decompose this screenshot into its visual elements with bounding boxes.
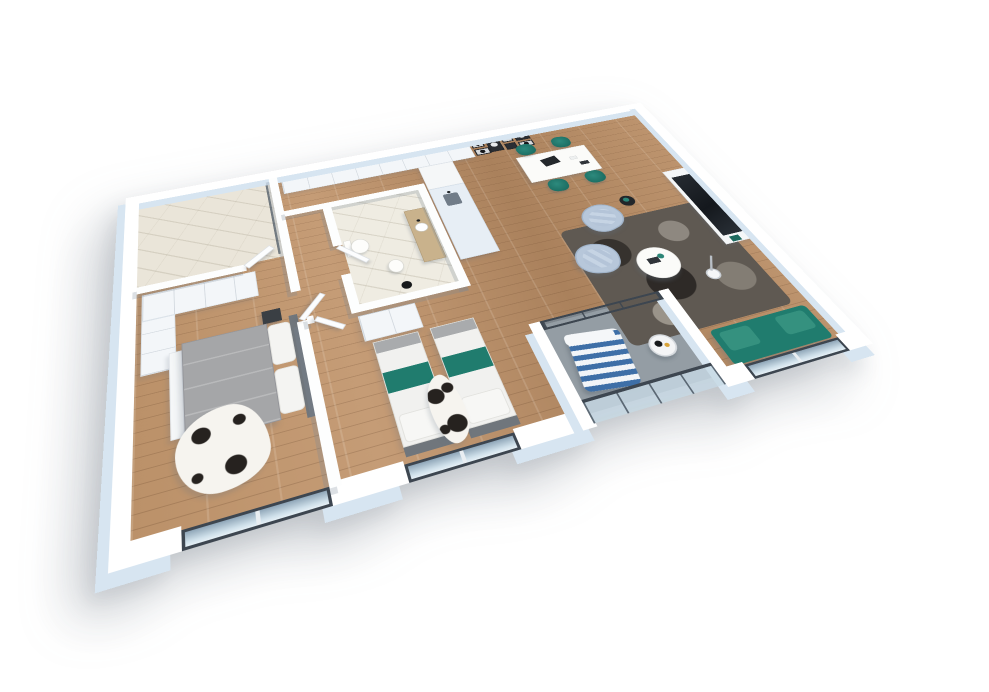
arc-lamp-stem	[710, 255, 713, 270]
floorplan-render	[0, 0, 989, 692]
apartment-plan	[108, 103, 873, 574]
building-shadow-wrapper	[0, 0, 989, 692]
